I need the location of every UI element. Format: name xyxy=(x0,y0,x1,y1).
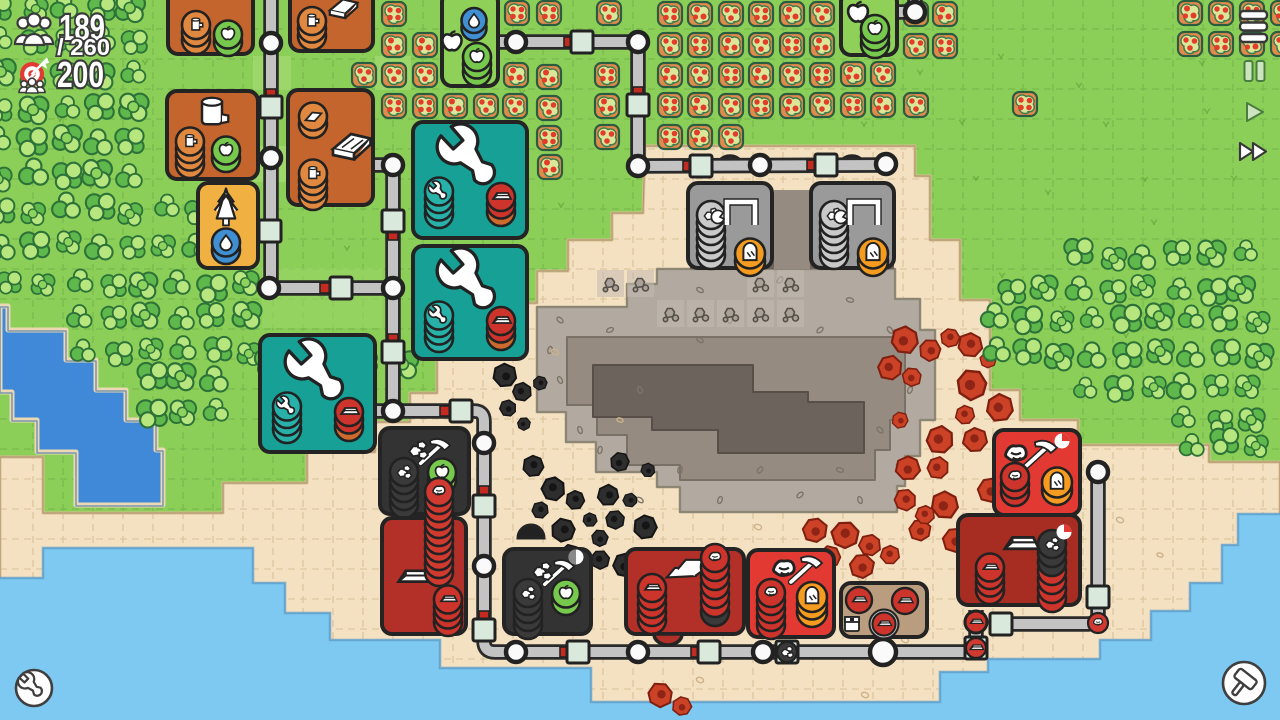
svg-text:200: 200 xyxy=(57,54,104,95)
